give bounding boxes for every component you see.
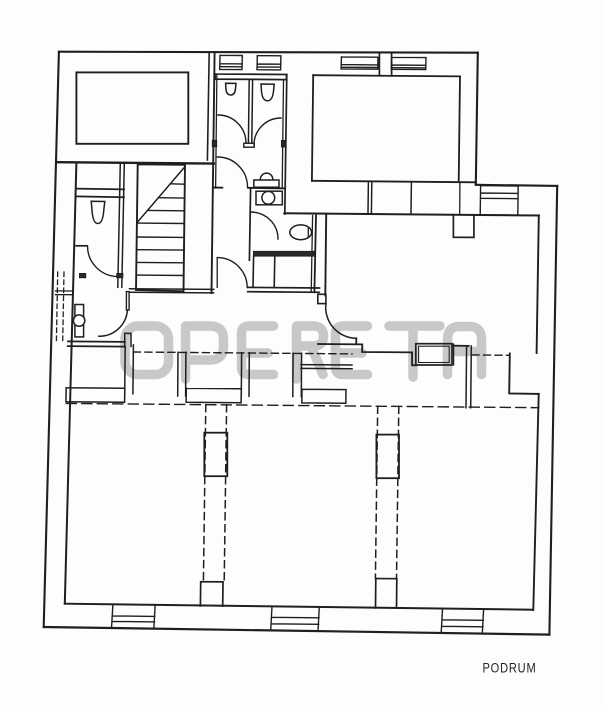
svg-text:PODRUM: PODRUM bbox=[483, 661, 537, 676]
